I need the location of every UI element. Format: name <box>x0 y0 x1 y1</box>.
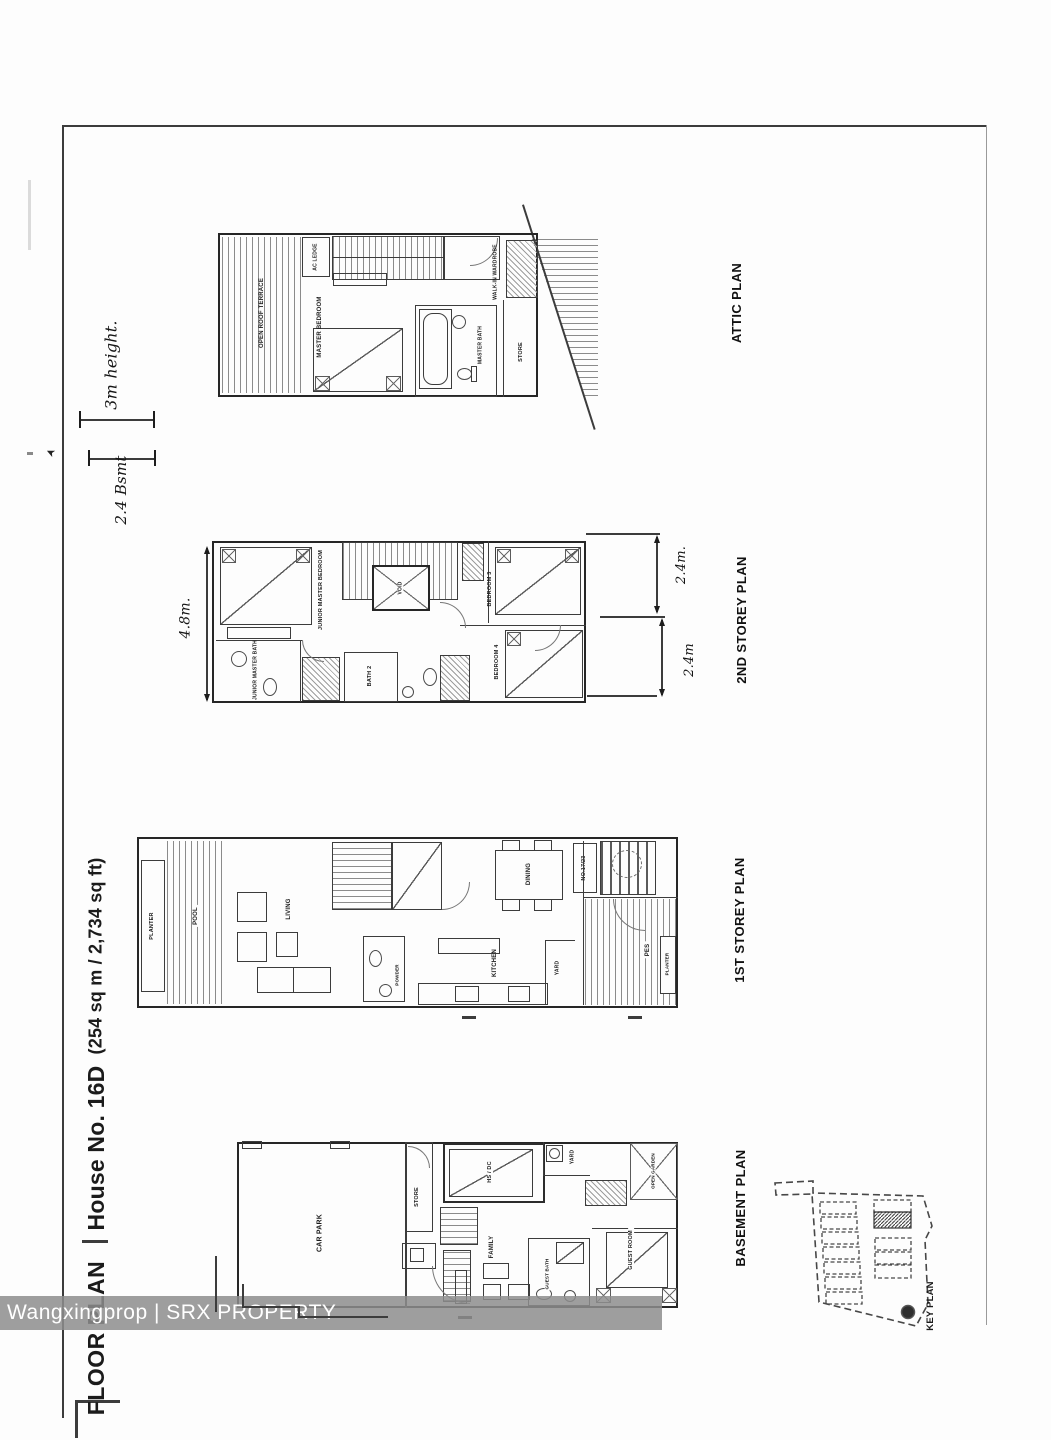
arrowhead <box>659 689 665 697</box>
sheet-border-top <box>62 125 987 127</box>
pillow <box>315 376 330 391</box>
dim-tick <box>587 695 657 697</box>
key-plan-drawing <box>762 1168 947 1336</box>
plan-title-key-plan: KEY PLAN <box>926 1281 936 1330</box>
arrowhead <box>659 618 665 626</box>
shower <box>556 1242 584 1264</box>
basin <box>452 315 466 329</box>
doc-title-floor-plan: FLOOR PLAN <box>84 1261 108 1416</box>
room-label-planter-right: PLANTER <box>666 953 671 976</box>
room-label-car-park: CAR PARK <box>316 1214 323 1252</box>
section-mark <box>628 1016 642 1019</box>
location-dot <box>902 1306 915 1319</box>
vanity <box>227 627 291 639</box>
wall <box>592 1228 678 1229</box>
room-label-void: VOID <box>398 579 403 596</box>
sheet-border-left <box>62 125 64 1418</box>
armchair <box>237 892 267 922</box>
room-label-planter-left: PLANTER <box>150 912 156 939</box>
room-label-master-bedroom: MASTER BEDROOM <box>317 296 323 357</box>
stove <box>455 986 479 1002</box>
toilet <box>423 668 437 686</box>
arrowhead <box>654 535 660 543</box>
doc-title-area: (254 sq m / 2,734 sq ft) <box>87 858 106 1055</box>
scan-fold-line <box>242 1306 300 1308</box>
chair <box>502 899 520 911</box>
washer-drum <box>549 1148 560 1159</box>
room-label-living: LIVING <box>286 898 292 919</box>
scan-fold-line <box>242 1284 244 1308</box>
guest-bed <box>606 1232 668 1288</box>
room-label-master-bath: MASTER BATH <box>478 326 483 364</box>
chair <box>534 840 552 851</box>
wardrobe-hangers <box>506 240 538 298</box>
scan-fold-line <box>215 1256 217 1312</box>
room-label-store: STORE <box>519 342 525 362</box>
room-label-guest-room: GUEST ROOM <box>629 1228 635 1272</box>
pillow <box>662 1288 677 1303</box>
dim-cap <box>153 411 155 428</box>
wardrobe-hangers <box>302 657 340 701</box>
pillow <box>497 549 511 563</box>
sheet-border-right <box>986 125 987 1325</box>
chair <box>534 899 552 911</box>
sheet-border-bottom-corner-v <box>75 1400 78 1438</box>
subject-unit-marker <box>874 1212 911 1228</box>
room-label-guest-bath: GUEST BATH <box>546 1257 551 1292</box>
first-stairs <box>332 842 392 910</box>
chair <box>502 840 520 851</box>
scan-artifact <box>27 452 33 455</box>
room-label-open-roof-terrace: OPEN ROOF TERRACE <box>259 278 265 348</box>
dim-cap <box>88 450 90 466</box>
store-wall <box>503 300 504 397</box>
plan-title-second-storey: 2ND STOREY PLAN <box>735 556 749 684</box>
dim-cap <box>79 411 81 428</box>
dim-arrow-line <box>206 548 208 700</box>
room-label-kitchen: KITCHEN <box>492 949 498 977</box>
sink <box>508 986 530 1002</box>
tree <box>612 850 642 878</box>
arrowhead <box>654 606 660 614</box>
basin <box>379 984 392 997</box>
bathtub-inner <box>423 313 448 385</box>
room-label-walk-in-wardrobe: WALK-IN WARDROBE <box>493 244 498 300</box>
wall <box>543 1142 544 1175</box>
section-mark <box>462 1016 476 1019</box>
hand-arrow-mark: ➤ <box>44 445 58 461</box>
wall <box>543 1175 590 1176</box>
dim-arrow-line <box>661 620 663 695</box>
room-label-bath2: BATH 2 <box>368 666 374 687</box>
bath-wall <box>216 640 302 641</box>
room-label-dining: DINING <box>526 863 532 885</box>
kitchen-island <box>438 938 500 954</box>
title-divider <box>82 1240 108 1243</box>
wardrobe-hangers <box>585 1180 627 1206</box>
wall <box>460 625 586 626</box>
basin <box>231 651 247 667</box>
watermark-text: Wangxingprop | SRX PROPERTY <box>7 1296 336 1330</box>
note-3m-height: 3m height. <box>104 320 121 409</box>
dim-arrow-line <box>656 537 658 612</box>
plan-title-attic: ATTIC PLAN <box>730 263 744 343</box>
room-label-open-garden: OPEN GARDEN <box>652 1151 657 1191</box>
arrowhead <box>204 694 210 702</box>
dim-4-8m: 4.8m. <box>179 598 194 639</box>
note-basement-height: 2.4 Bsmt <box>114 455 130 524</box>
floorplan-sheet: FLOOR PLAN House No. 16D (254 sq m / 2,7… <box>0 0 1051 1440</box>
coffee-table <box>276 932 298 957</box>
dim-tick <box>600 616 665 618</box>
dim-tick <box>586 533 660 535</box>
pillow <box>565 549 579 563</box>
dim-bracket <box>80 419 154 421</box>
pillow <box>386 376 401 391</box>
toilet <box>263 678 277 696</box>
room-label-ac-ledge: AC LEDGE <box>313 243 318 270</box>
toilet-tank <box>471 366 477 382</box>
plan-title-first-storey: 1ST STOREY PLAN <box>733 857 747 982</box>
room-label-hs: HS / DC <box>488 1159 494 1185</box>
tv-console <box>333 273 387 286</box>
room-label-yard: YARD <box>555 961 560 976</box>
watermark-bar: Wangxingprop | SRX PROPERTY <box>0 1296 662 1330</box>
pillow <box>507 632 521 646</box>
arrowhead <box>204 546 210 554</box>
room-label-basement-yard: YARD <box>570 1150 575 1165</box>
dim-2-4m-bottom: 2.4m <box>683 643 697 677</box>
wall <box>545 940 575 941</box>
room-label-basement-store: STORE <box>415 1187 421 1207</box>
room-label-junior-master-bath: JUNIOR MASTER BATH <box>253 640 258 700</box>
toilet <box>457 368 472 380</box>
room-label-family: FAMILY <box>489 1236 495 1259</box>
room-label-bedroom4: BEDROOM 4 <box>495 644 501 679</box>
family-furniture <box>483 1263 509 1279</box>
scan-artifact <box>28 180 31 250</box>
wall-notch <box>242 1141 262 1149</box>
sofa-cushion-line <box>293 967 294 993</box>
dim-2-4m-top: 2.4m. <box>675 546 689 584</box>
plan-title-basement: BASEMENT PLAN <box>734 1149 748 1266</box>
room-label-junior-master-bedroom: JUNIOR MASTER BEDROOM <box>319 550 325 630</box>
room-label-powder: POWDER <box>396 964 401 985</box>
utility-fixture <box>410 1248 424 1262</box>
room-label-pes: PES <box>645 942 651 959</box>
dim-cap <box>154 450 156 466</box>
basement-stairs <box>440 1207 478 1245</box>
room-label-bedroom3: BEDROOM 3 <box>488 571 494 606</box>
wardrobe-hangers <box>462 543 484 581</box>
wardrobe-hangers <box>440 655 470 701</box>
toilet <box>369 950 382 967</box>
stair-landing <box>392 842 442 910</box>
basin <box>402 686 414 698</box>
scan-fold-line <box>298 1316 388 1318</box>
room-label-pool: POOL <box>193 905 199 927</box>
wall <box>545 940 546 1005</box>
armchair <box>237 932 267 962</box>
pillow <box>296 549 310 563</box>
doc-title-house-no: House No. 16D <box>84 1066 108 1231</box>
key-plan <box>762 1168 947 1336</box>
stair-rail <box>332 257 444 258</box>
pillow <box>222 549 236 563</box>
wall-notch <box>330 1141 350 1149</box>
